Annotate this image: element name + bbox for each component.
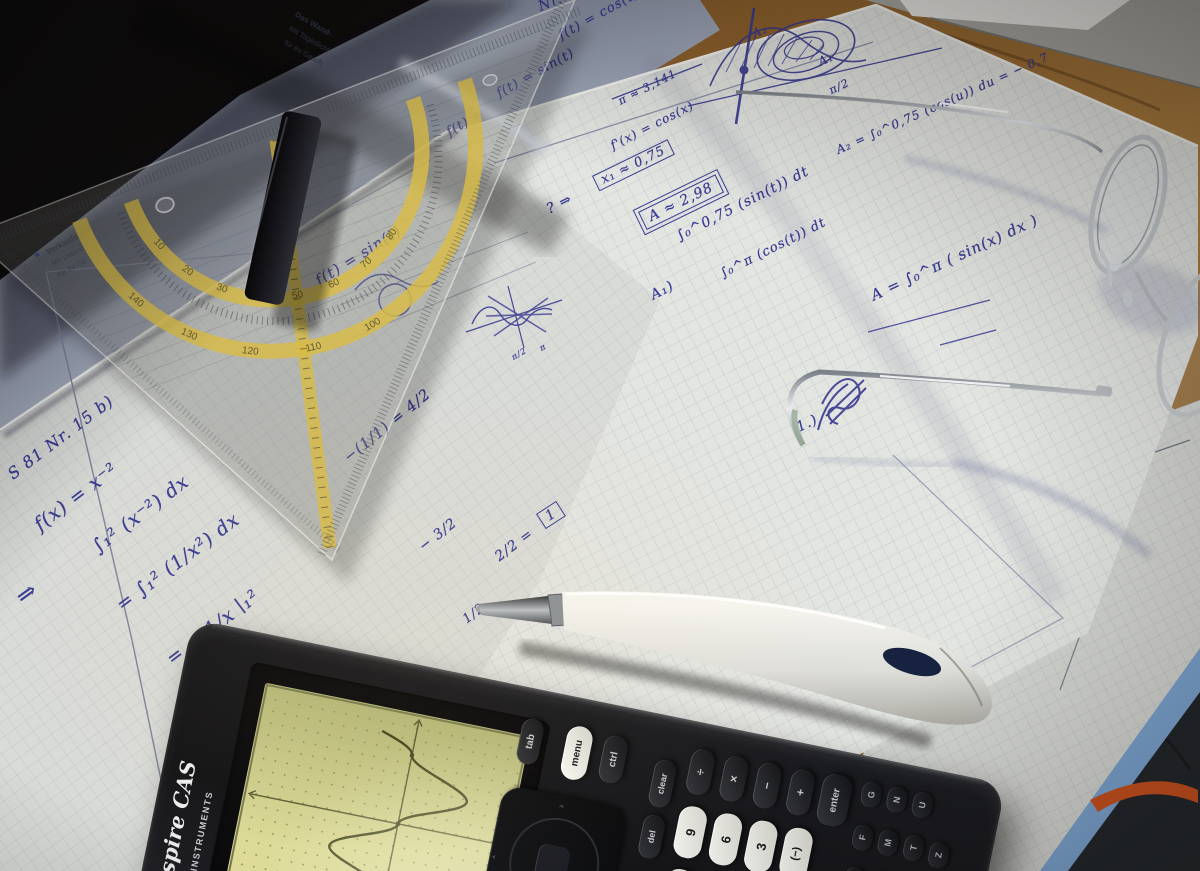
pen-layer bbox=[0, 0, 1200, 871]
photo-scene: Das Wand- Mit Tageslicht für Ihr Gesch. … bbox=[0, 0, 1200, 871]
pen-metal-tip bbox=[478, 596, 552, 624]
